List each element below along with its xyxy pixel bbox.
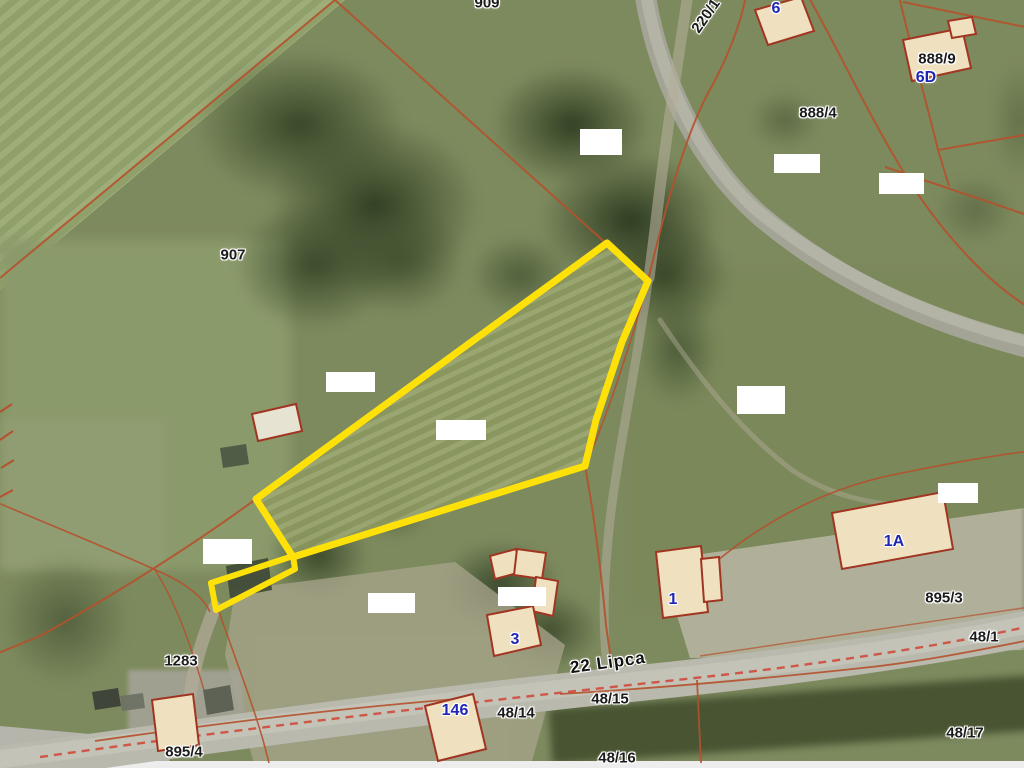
map-viewport[interactable]: 909220/1907888/4888/9895/348/148/1548/14… [0,0,1024,768]
parcel-number-label: 48/16 [598,750,636,767]
address-number-label: 1A [884,533,904,551]
parcel-number-label: 907 [220,247,245,264]
parcel-number-label: 48/15 [591,691,629,708]
parcel-number-label: 48/14 [497,705,535,722]
address-number-label: 1 [669,591,678,609]
parcel-number-label: 888/9 [918,51,956,68]
parcel-number-label: 888/4 [799,105,837,122]
parcel-number-label: 895/3 [925,590,963,607]
address-number-label: 6D [916,69,936,87]
parcel-number-label: 48/1 [969,629,998,646]
parcel-number-label: 48/17 [946,725,984,742]
address-number-label: 6 [772,0,781,18]
address-number-label: 3 [511,631,520,649]
parcel-number-label: 895/4 [165,744,203,761]
labels-layer: 909220/1907888/4888/9895/348/148/1548/14… [0,0,1024,768]
address-number-label: 146 [442,702,469,720]
street-name-label: 22 Lipca [569,648,647,678]
parcel-number-label: 1283 [164,653,197,670]
parcel-number-label: 909 [474,0,499,12]
parcel-number-label: 220/1 [688,0,723,36]
